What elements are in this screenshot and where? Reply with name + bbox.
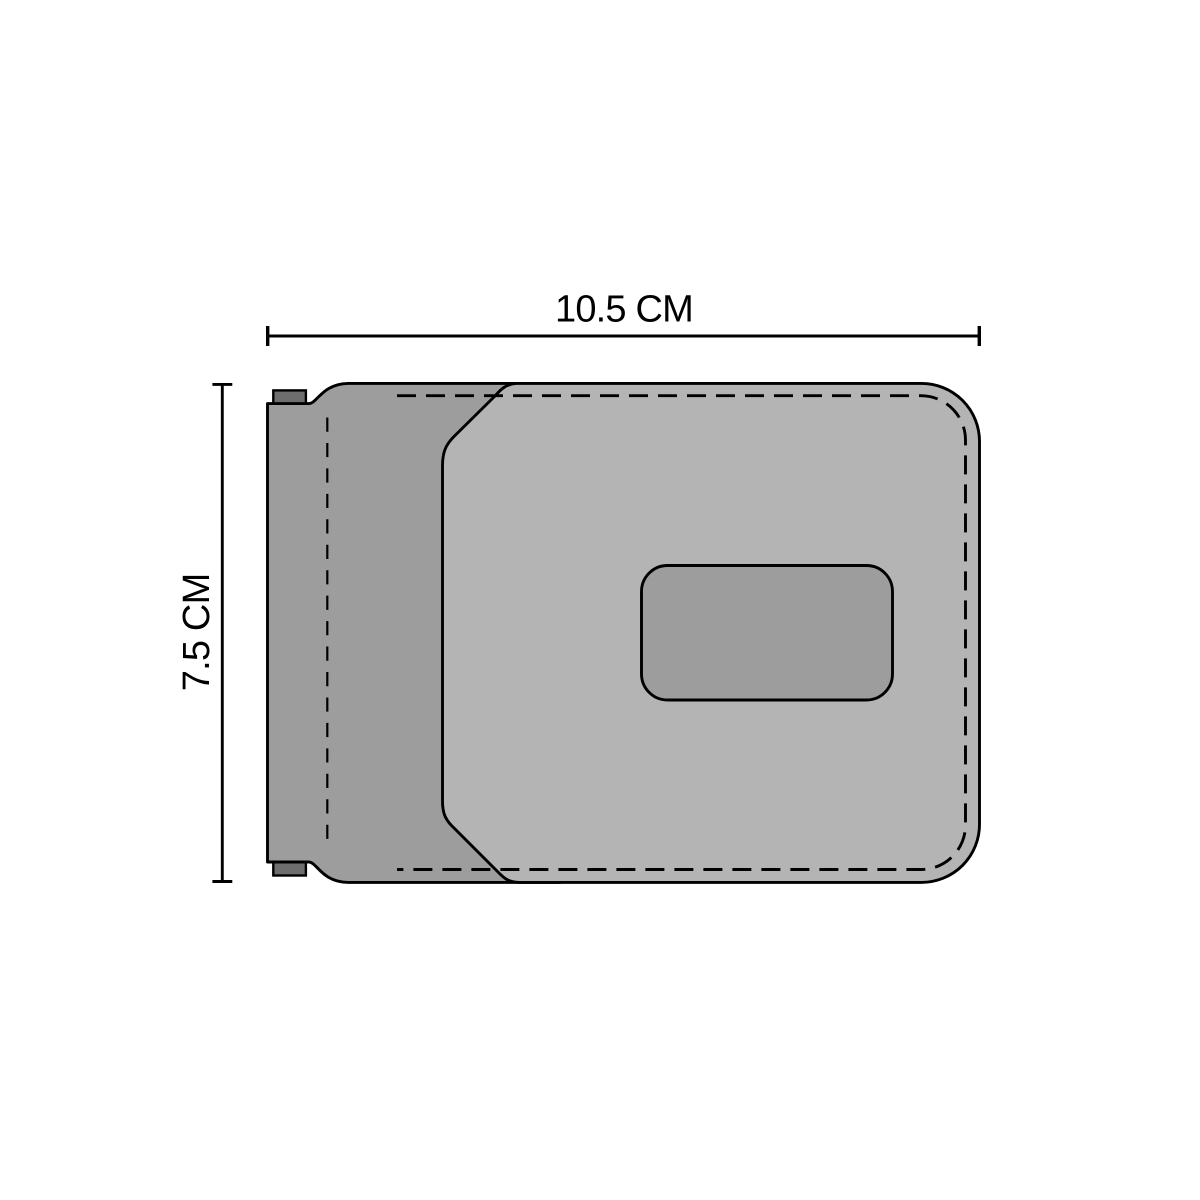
svg-text:10.5 CM: 10.5 CM — [555, 289, 693, 331]
svg-text:7.5 CM: 7.5 CM — [176, 574, 218, 692]
